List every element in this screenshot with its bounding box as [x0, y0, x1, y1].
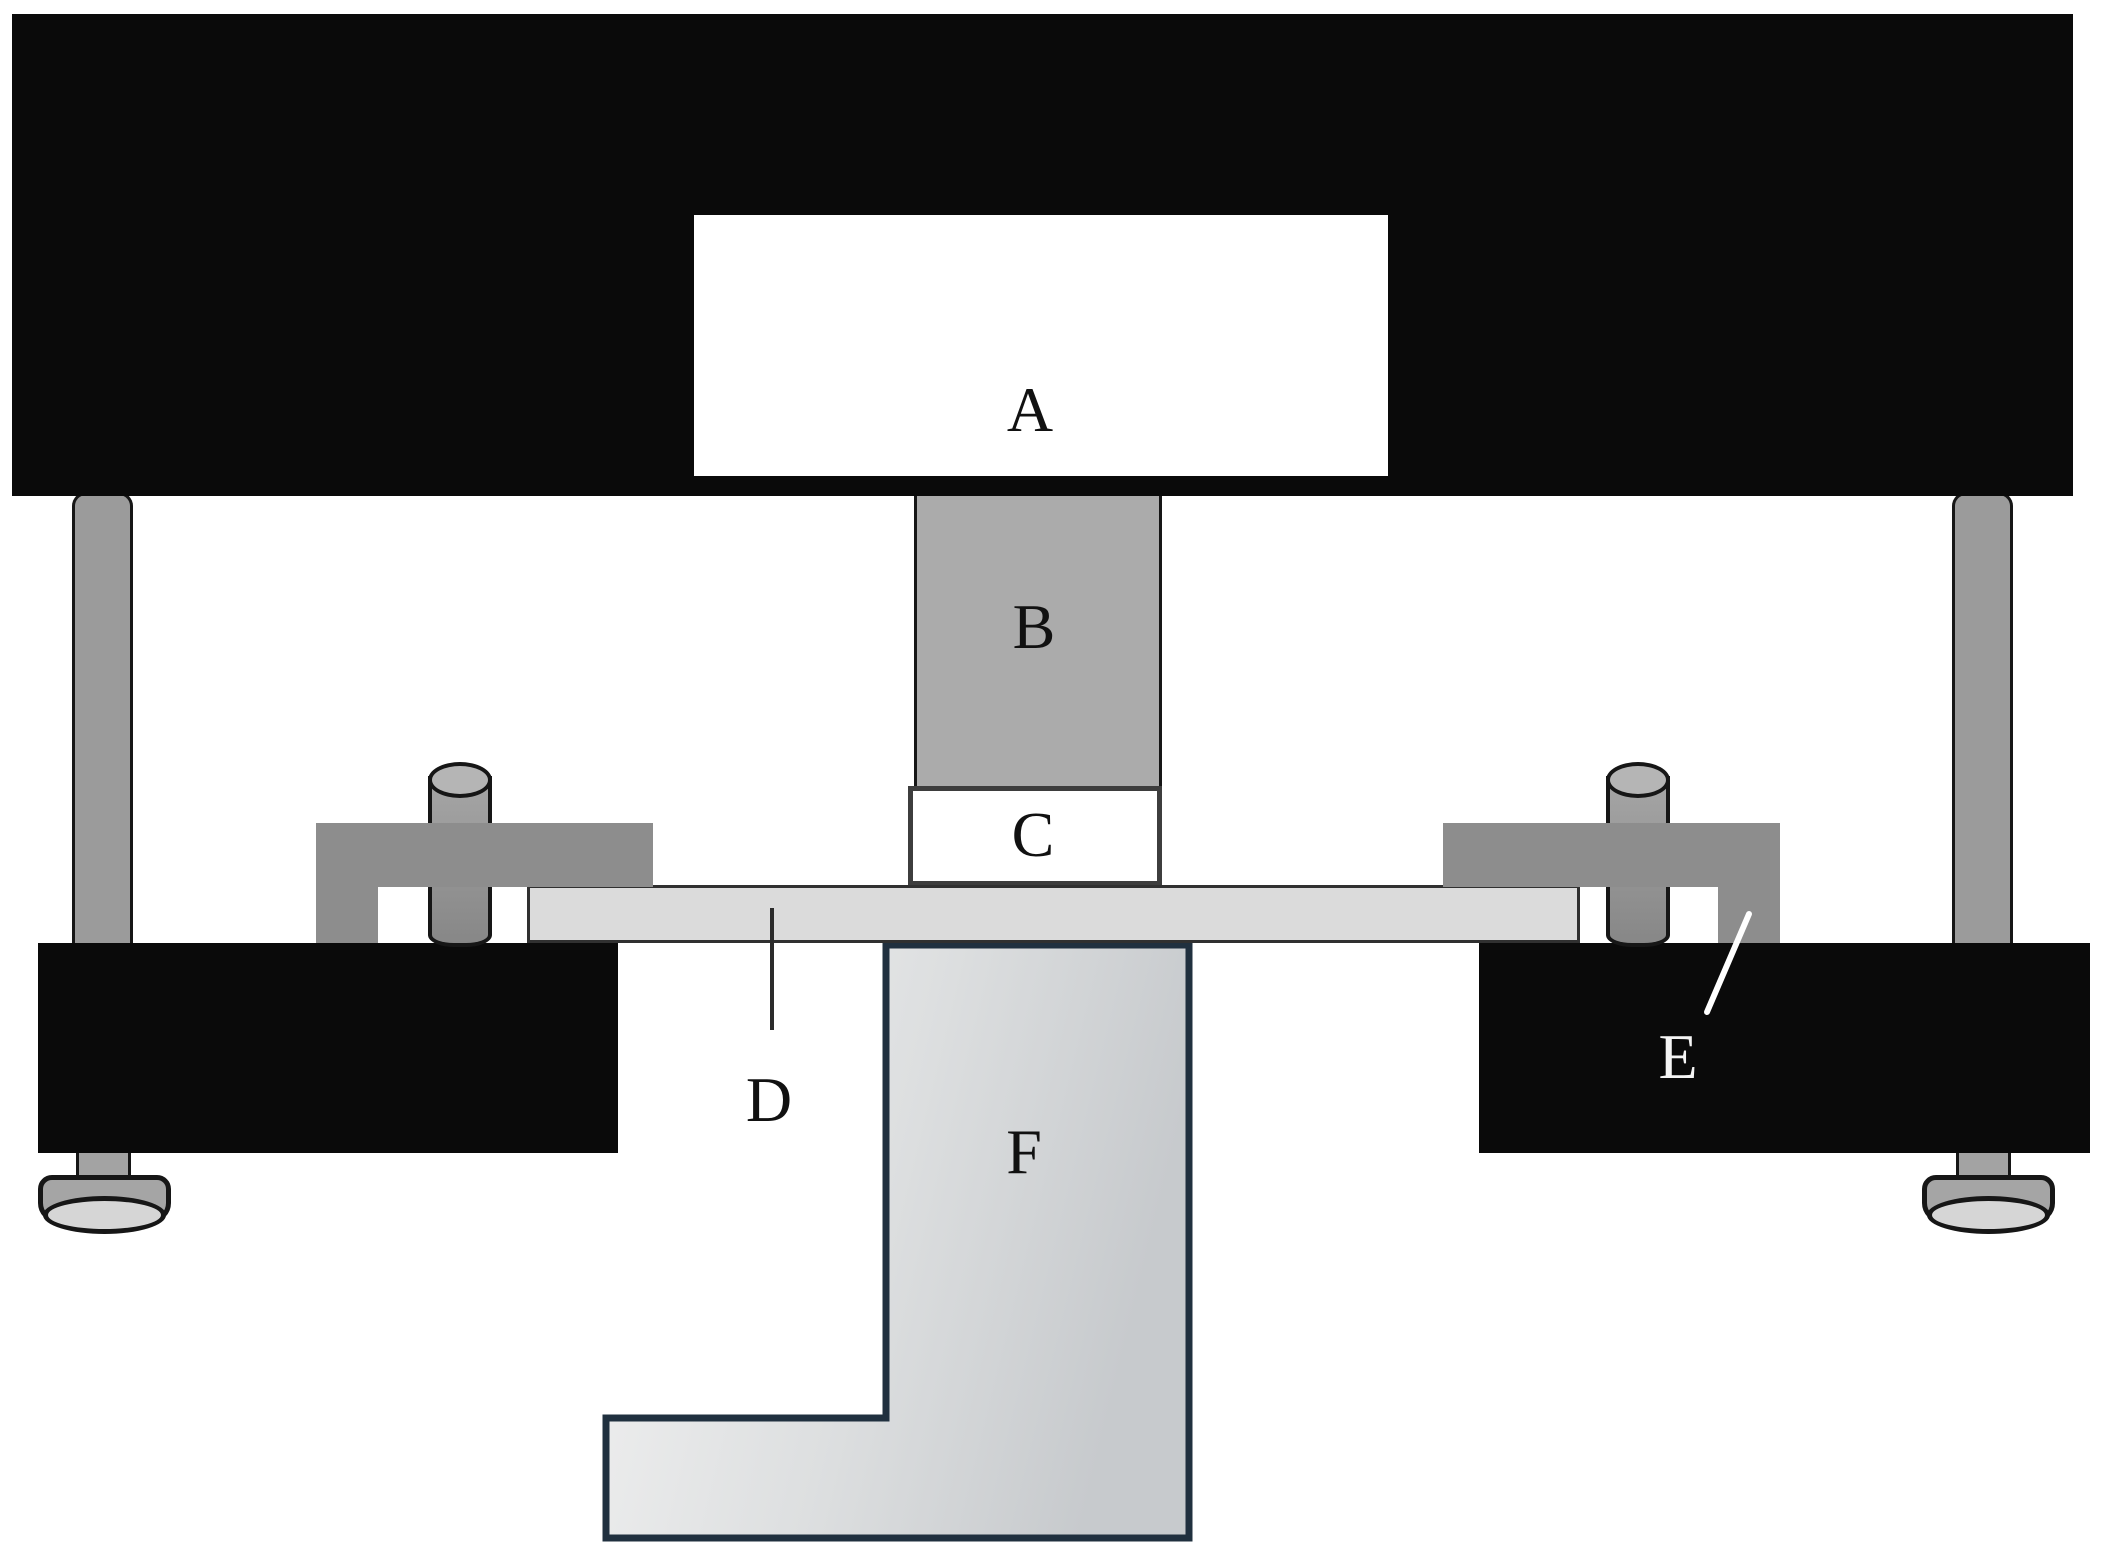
clamp-screw-right-cap — [1606, 762, 1670, 798]
clamp-screw-left-cap — [428, 762, 492, 798]
clamp-bracket-left-bar — [316, 823, 653, 887]
foot-pad-left-underside — [43, 1196, 166, 1234]
base-block-right — [1479, 943, 2090, 1153]
foot-screw-neck-left — [76, 1153, 131, 1177]
foot-screw-neck-right — [1956, 1153, 2011, 1177]
foot-pad-right-underside — [1927, 1196, 2050, 1234]
label-b: B — [1013, 595, 1056, 659]
support-rod-left — [72, 492, 133, 946]
label-c: C — [1012, 803, 1055, 867]
clamp-bracket-right-leg — [1718, 887, 1780, 943]
label-d: D — [746, 1068, 792, 1132]
support-plate-d — [527, 885, 1580, 943]
label-f: F — [1006, 1120, 1042, 1184]
l-bracket-part-f — [600, 940, 1200, 1550]
l-bracket-outline — [606, 945, 1189, 1538]
label-e: E — [1658, 1025, 1697, 1089]
apparatus-schematic-figure: A B C D E F — [0, 0, 2107, 1557]
label-a: A — [1007, 378, 1053, 442]
clamp-bracket-left-leg — [316, 887, 378, 943]
base-block-left — [38, 943, 618, 1153]
clamp-bracket-right-bar — [1443, 823, 1780, 887]
support-rod-right — [1952, 492, 2013, 946]
